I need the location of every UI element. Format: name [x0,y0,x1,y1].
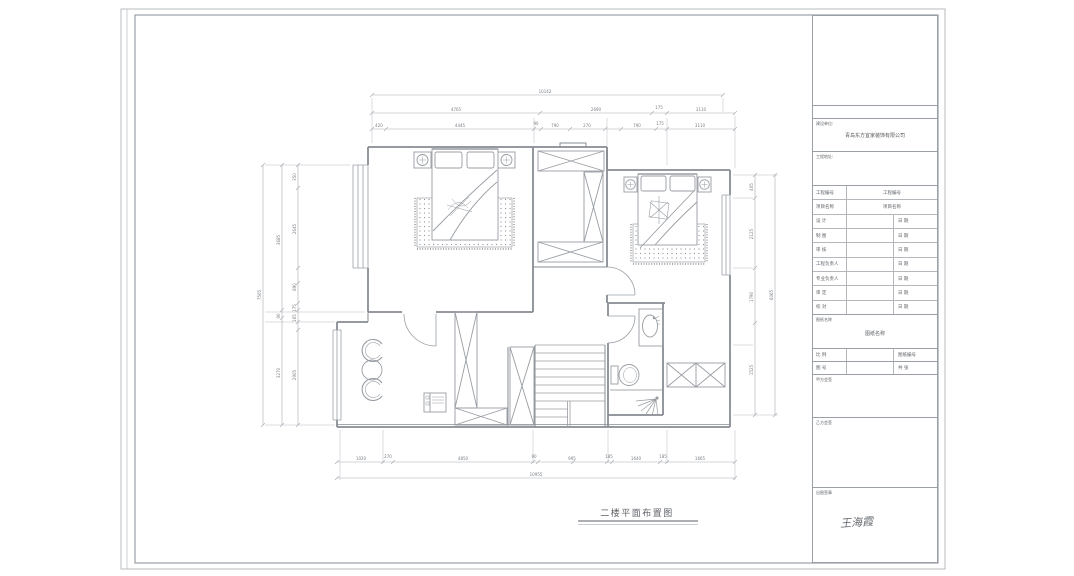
dim-label: 4850 [458,456,469,461]
dim-label: 2905 [292,369,297,380]
client-sign-section: 甲方会签 [813,375,937,418]
row-label: 设 计 [813,215,847,228]
washbasin [639,309,663,346]
table-row: 审 定 日 期 [813,286,937,300]
stairs [535,345,605,427]
row-label: 审 核 [813,243,847,256]
row-value [847,286,893,299]
contractor-sign-label: 乙方会签 [816,420,934,426]
issue-sign-label: 出图签章 [816,490,934,496]
row-value [847,215,893,228]
dim-label: 90 [533,121,539,126]
table-row: 工程负责人 日 期 [813,258,937,272]
bedroom2-bed [638,174,697,248]
dim-label: 175 [656,121,664,126]
row-value [847,272,893,285]
dim-label: 3270 [276,367,281,378]
dim-label: 790 [551,123,559,128]
owner-company: 青岛东方宜家装饰有限公司 [816,132,934,139]
table-row: 校 对 日 期 [813,301,937,314]
signature: 王海霞 [840,509,935,532]
dim-label: 2690 [591,107,602,112]
dim-label: 90 [276,313,281,319]
row-label: 审 定 [813,286,847,299]
row-date-label: 日 期 [893,301,937,314]
owner-label: 建设单位: [816,121,934,127]
figure-no-label: 图 号 [813,362,847,374]
table-row: 专业负责人 日 期 [813,272,937,286]
total-sheets-label: 共 张 [893,362,937,374]
row-label: 制 图 [813,229,847,242]
dim-bottom-labels: 1020 270 4850 90 995 185 1640 185 1665 1… [356,454,706,477]
dim-left [261,163,365,427]
title-block: 建设单位: 青岛东方宜家装饰有限公司 工程地址: 工程编号 工程编号 项目名称 … [812,15,938,563]
dim-label: 2645 [292,223,297,234]
title-block-logo-box [813,16,937,106]
table-row: 工程编号 工程编号 [813,186,937,200]
dim-label: 1525 [749,364,754,375]
row-value: 项目名称 [847,200,937,213]
row-value [847,258,893,271]
caption: 二楼平面布置图 [578,507,698,525]
row-date-label: 日 期 [893,229,937,242]
row-date-label: 日 期 [893,243,937,256]
scale-label: 比 例 [813,349,847,361]
scale-value [847,349,893,361]
bath-cabinet [667,363,725,387]
toilet [611,365,639,386]
dim-label: 4765 [451,107,462,112]
row-value [847,243,893,256]
dim-label: 10142 [539,89,552,94]
hall-wardrobe [455,312,507,425]
dim-label: 6065 [769,289,774,300]
stairs-cabinet [510,347,534,425]
washing-machine [424,393,446,412]
row-label: 项目名称 [813,200,847,213]
dim-label: 890 [292,283,297,291]
dim-label: 1640 [631,456,642,461]
drawing-name-section: 图纸名称 图纸名称 [813,315,937,349]
dim-label: 165 [292,314,297,322]
shower-head-icon [636,397,658,416]
dim-right-labels: 405 2125 1790 1525 6065 [749,183,774,375]
row-label: 校 对 [813,301,847,314]
dim-label: 350 [292,173,297,181]
dim-label: 185 [659,454,667,459]
row-value [847,301,893,314]
contractor-sign-section: 乙方会签 [813,418,937,488]
table-row: 制 图 日 期 [813,229,937,243]
row-date-label: 日 期 [893,258,937,271]
dim-label: 10955 [530,472,543,477]
dim-label: 185 [605,454,613,459]
dim-label: 3685 [276,234,281,245]
dim-label: 270 [384,454,392,459]
dim-label: 7505 [257,289,262,300]
leisure-chairs [362,340,382,401]
dim-label: 1020 [356,456,367,461]
figure-no-value [847,362,893,374]
table-row: 设 计 日 期 [813,215,937,229]
dim-label: 1790 [749,291,754,302]
info-table: 工程编号 工程编号 项目名称 项目名称 设 计 日 期 制 图 日 期 审 核 … [813,186,937,315]
dim-label: 3110 [695,123,706,128]
master-bed [432,149,498,240]
row-value [847,229,893,242]
row-label: 工程编号 [813,186,847,199]
cad-sheet: 10142 4765 2690 175 3110 420 4445 90 790… [0,0,1074,576]
dim-label: 995 [568,456,576,461]
issue-sign-section: 出图签章 王海霞 [813,488,937,562]
dim-label: 3110 [696,107,707,112]
drawing-name-value: 图纸名称 [816,330,934,337]
dim-label: 420 [375,123,383,128]
title-block-spacer [813,106,937,119]
doors [404,267,635,346]
scale-row: 比 例 图纸编号 [813,349,937,362]
row-date-label: 日 期 [893,272,937,285]
dim-label: 175 [655,105,663,110]
address-section: 工程地址: [813,152,937,186]
dim-label: 175 [292,304,297,312]
closet-wardrobes [538,151,604,262]
row-label: 工程负责人 [813,258,847,271]
dim-label: 1665 [695,456,706,461]
dim-label: 270 [583,123,591,128]
row-value: 工程编号 [847,186,937,199]
side-table [362,360,382,380]
table-row: 项目名称 项目名称 [813,200,937,214]
drawing-title: 二楼平面布置图 [600,507,674,519]
sheet-no-label: 图纸编号 [893,349,937,361]
address-label: 工程地址: [816,154,934,160]
table-row: 审 核 日 期 [813,243,937,257]
row-label: 专业负责人 [813,272,847,285]
owner-section: 建设单位: 青岛东方宜家装饰有限公司 [813,119,937,152]
figure-no-row: 图 号 共 张 [813,362,937,375]
dim-label: 405 [749,183,754,191]
dim-label: 90 [531,454,537,459]
dim-label: 4445 [455,123,466,128]
row-date-label: 日 期 [893,286,937,299]
row-date-label: 日 期 [893,215,937,228]
dim-label: 2125 [749,228,754,239]
dim-label: 790 [633,123,641,128]
drawing-name-label: 图纸名称 [816,317,934,323]
client-sign-label: 甲方会签 [816,377,934,383]
